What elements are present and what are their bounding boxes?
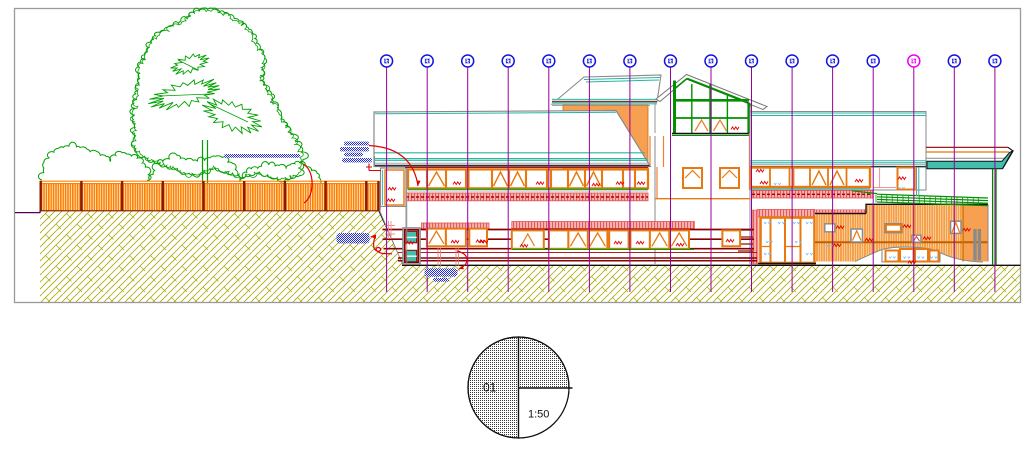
svg-text:1:50: 1:50: [528, 409, 549, 421]
svg-text:01: 01: [483, 381, 497, 395]
